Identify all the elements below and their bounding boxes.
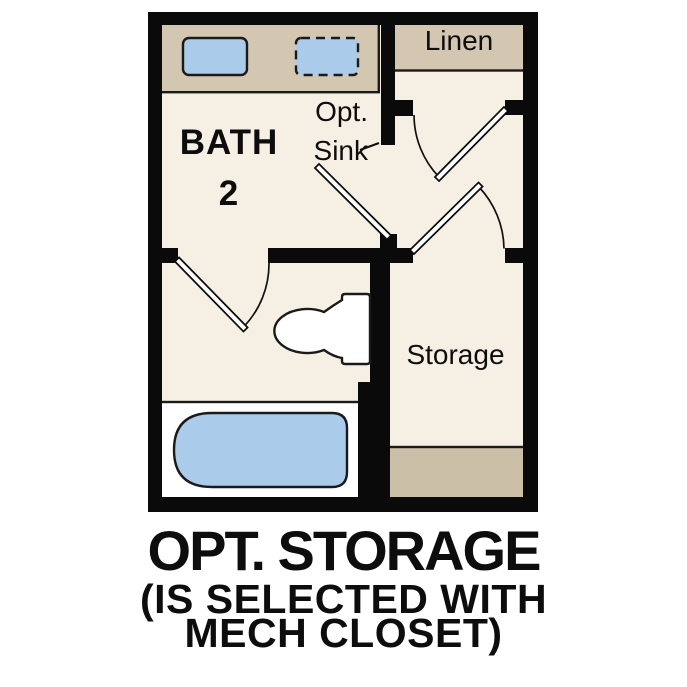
storage-shelf-edge bbox=[390, 446, 523, 448]
wall-storage-jamb-right bbox=[505, 248, 523, 263]
opt-sink-label-line1: Opt. bbox=[315, 96, 368, 127]
wall-bath-hall bbox=[381, 25, 395, 145]
wall-bath-mid bbox=[268, 248, 413, 263]
wall-bottom bbox=[148, 497, 538, 512]
wall-linen-jamb-right bbox=[505, 100, 523, 115]
bath-room-label-line2: 2 bbox=[219, 174, 239, 213]
tub-deck-edge bbox=[162, 401, 358, 403]
floor-plan: BATH2 Opt.Sink Linen Storage OPT. STORAG… bbox=[0, 0, 687, 687]
sink bbox=[183, 38, 247, 75]
bath-counter-side-edge bbox=[378, 25, 380, 93]
wall-linen-jamb-left bbox=[395, 100, 413, 116]
linen-shelf-edge bbox=[395, 69, 523, 71]
wall-storage-left-lower bbox=[358, 382, 390, 498]
wall-left bbox=[148, 12, 162, 512]
caption-title: OPT. STORAGE bbox=[0, 522, 687, 580]
wall-right bbox=[523, 12, 538, 512]
storage-shelf-strip bbox=[390, 448, 523, 498]
caption: OPT. STORAGE (IS SELECTED WITH MECH CLOS… bbox=[0, 522, 687, 650]
wall-storage-left-upper bbox=[370, 263, 390, 383]
opt-sink-label: Opt.Sink bbox=[248, 92, 368, 170]
linen-room-label: Linen bbox=[395, 21, 523, 61]
opt-sink-label-line2: Sink bbox=[314, 135, 368, 166]
storage-room-label: Storage bbox=[388, 335, 523, 375]
caption-subtitle-line2: MECH CLOSET) bbox=[0, 616, 687, 650]
bathtub bbox=[174, 413, 347, 487]
optional-sink bbox=[296, 38, 358, 75]
